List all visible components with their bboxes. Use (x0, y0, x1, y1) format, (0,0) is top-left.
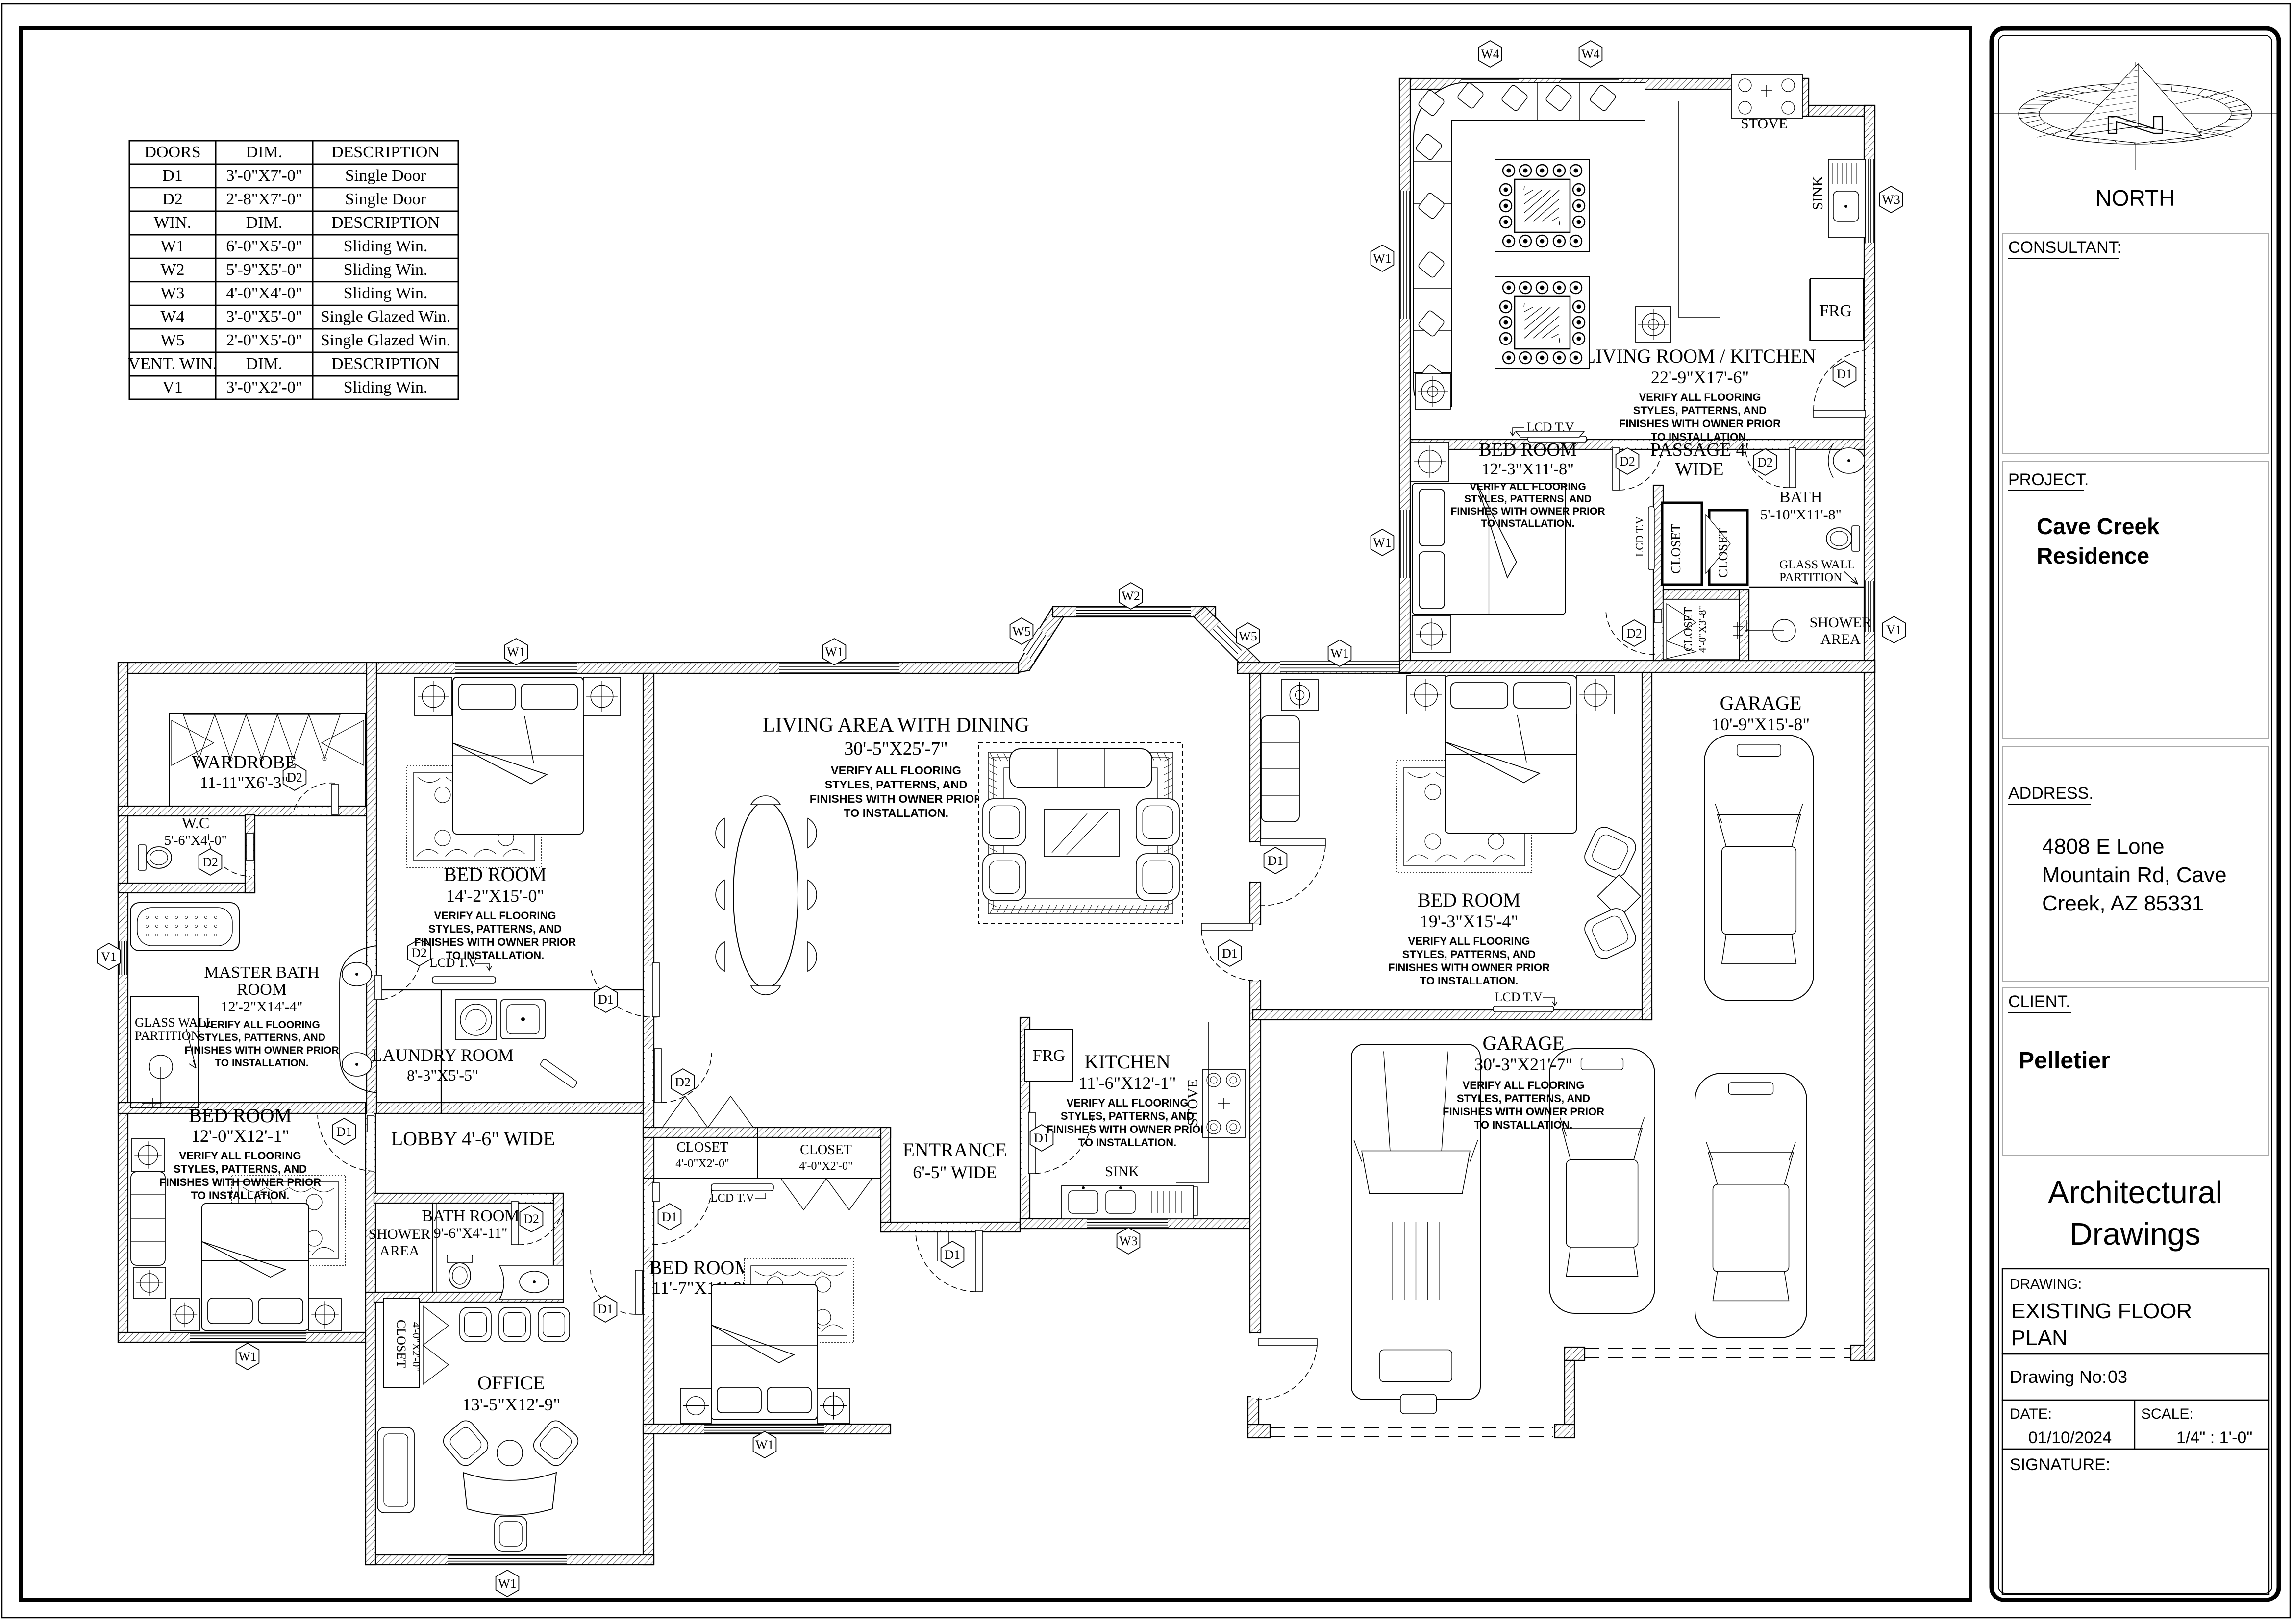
svg-text:3'-0"X5'-0": 3'-0"X5'-0" (226, 308, 302, 326)
svg-text:Drawings: Drawings (2070, 1216, 2201, 1252)
svg-text:WARDROBE: WARDROBE (192, 752, 296, 773)
svg-text:DIM.: DIM. (246, 355, 283, 373)
svg-text:KITCHEN: KITCHEN (1084, 1051, 1171, 1073)
svg-text:W1: W1 (238, 1350, 257, 1364)
svg-text:VENT. WIN.: VENT. WIN. (128, 355, 217, 373)
svg-text:SIGNATURE:: SIGNATURE: (2010, 1455, 2110, 1474)
svg-text:6'-0"X5'-0": 6'-0"X5'-0" (226, 237, 302, 255)
svg-text:SHOWER: SHOWER (1810, 615, 1872, 631)
svg-text:FINISHES WITH OWNER PRIOR: FINISHES WITH OWNER PRIOR (1451, 506, 1605, 517)
svg-text:5'-6"X4'-0": 5'-6"X4'-0" (164, 833, 227, 848)
svg-text:LAUNDRY ROOM: LAUNDRY ROOM (372, 1045, 514, 1065)
svg-text:BED ROOM: BED ROOM (1418, 889, 1520, 911)
svg-text:LIVING ROOM / KITCHEN: LIVING ROOM / KITCHEN (1584, 345, 1816, 367)
svg-text:SHOWER: SHOWER (369, 1226, 431, 1242)
svg-text:4'-0"X2'-0": 4'-0"X2'-0" (675, 1157, 729, 1170)
svg-text:Cave Creek: Cave Creek (2037, 514, 2160, 539)
svg-text:CLOSET: CLOSET (1669, 523, 1683, 574)
svg-text:14'-2"X15'-0": 14'-2"X15'-0" (446, 886, 544, 906)
svg-text:DIM.: DIM. (246, 214, 283, 232)
svg-text:SINK: SINK (1810, 176, 1826, 210)
svg-text:6'-5" WIDE: 6'-5" WIDE (913, 1162, 997, 1182)
svg-text:PARTITION: PARTITION (135, 1029, 200, 1043)
svg-text:30'-5"X25'-7": 30'-5"X25'-7" (844, 738, 947, 759)
svg-text:D1: D1 (598, 1302, 613, 1316)
svg-text:Single Glazed Win.: Single Glazed Win. (321, 308, 450, 326)
svg-text:AREA: AREA (1820, 631, 1861, 647)
svg-text:BED ROOM: BED ROOM (1479, 440, 1577, 460)
svg-text:D1: D1 (1222, 946, 1238, 960)
svg-text:TO INSTALLATION.: TO INSTALLATION. (1078, 1136, 1176, 1149)
svg-text:W1: W1 (825, 645, 844, 659)
svg-text:NORTH: NORTH (2095, 185, 2175, 211)
svg-text:Pelletier: Pelletier (2019, 1048, 2110, 1074)
svg-text:W5: W5 (1239, 629, 1257, 643)
svg-text:STYLES, PATTERNS, AND: STYLES, PATTERNS, AND (1464, 493, 1592, 505)
svg-text:BATH: BATH (1779, 488, 1823, 506)
svg-text:22'-9"X17'-6": 22'-9"X17'-6" (1651, 368, 1749, 387)
svg-text:W3: W3 (160, 284, 184, 302)
svg-text:4'-0"X3'-8": 4'-0"X3'-8" (1696, 606, 1708, 653)
svg-text:V1: V1 (162, 378, 183, 396)
svg-text:2'-8"X7'-0": 2'-8"X7'-0" (226, 190, 302, 208)
svg-text:FINISHES WITH OWNER PRIOR: FINISHES WITH OWNER PRIOR (1047, 1123, 1208, 1135)
svg-text:STYLES, PATTERNS, AND: STYLES, PATTERNS, AND (1061, 1110, 1194, 1122)
svg-text:TO INSTALLATION.: TO INSTALLATION. (215, 1058, 308, 1069)
svg-text:BED ROOM: BED ROOM (649, 1256, 752, 1279)
svg-text:FINISHES WITH OWNER PRIOR: FINISHES WITH OWNER PRIOR (185, 1045, 339, 1056)
svg-text:VERIFY ALL FLOORING: VERIFY ALL FLOORING (1067, 1097, 1189, 1109)
svg-text:CLOSET: CLOSET (1716, 527, 1730, 578)
svg-text:STYLES, PATTERNS, AND: STYLES, PATTERNS, AND (174, 1163, 307, 1175)
svg-text:4808 E Lone: 4808 E Lone (2042, 835, 2165, 859)
svg-text:FINISHES WITH OWNER PRIOR: FINISHES WITH OWNER PRIOR (1443, 1106, 1604, 1118)
svg-text:W1: W1 (755, 1438, 774, 1452)
svg-text:W2: W2 (1122, 589, 1140, 603)
svg-text:STYLES, PATTERNS, AND: STYLES, PATTERNS, AND (825, 778, 968, 791)
svg-text:W1: W1 (498, 1576, 517, 1591)
svg-text:W3: W3 (1119, 1234, 1138, 1248)
svg-text:GARAGE: GARAGE (1483, 1032, 1565, 1054)
svg-text:PASSAGE 4': PASSAGE 4' (1650, 440, 1749, 460)
svg-text:FRG: FRG (1819, 302, 1852, 320)
svg-text:CLIENT.: CLIENT. (2008, 992, 2070, 1011)
svg-text:TO INSTALLATION.: TO INSTALLATION. (844, 807, 948, 819)
svg-text:D1: D1 (945, 1248, 960, 1262)
svg-text:Sliding Win.: Sliding Win. (344, 261, 428, 279)
svg-text:D2: D2 (1626, 626, 1642, 640)
svg-text:VERIFY ALL FLOORING: VERIFY ALL FLOORING (203, 1019, 320, 1031)
svg-text:W5: W5 (160, 331, 184, 349)
svg-text:VERIFY ALL FLOORING: VERIFY ALL FLOORING (1463, 1079, 1585, 1091)
svg-text:01/10/2024: 01/10/2024 (2028, 1428, 2112, 1447)
svg-text:13'-5"X12'-9": 13'-5"X12'-9" (462, 1395, 560, 1414)
svg-text:5'-9"X5'-0": 5'-9"X5'-0" (226, 261, 302, 279)
svg-text:DIM.: DIM. (246, 143, 283, 161)
svg-text:ENTRANCE: ENTRANCE (902, 1139, 1007, 1161)
svg-text:Creek, AZ 85331: Creek, AZ 85331 (2042, 891, 2204, 915)
svg-text:D1: D1 (1268, 854, 1283, 868)
svg-text:Drawing No:: Drawing No: (2010, 1367, 2107, 1387)
svg-text:Sliding Win.: Sliding Win. (344, 284, 428, 302)
svg-text:W2: W2 (160, 261, 184, 279)
svg-text:FRG: FRG (1033, 1047, 1065, 1065)
svg-text:D2: D2 (202, 855, 218, 869)
svg-text:DESCRIPTION: DESCRIPTION (331, 214, 440, 232)
svg-text:W5: W5 (1012, 624, 1031, 639)
svg-text:10'-9"X15'-8": 10'-9"X15'-8" (1712, 714, 1810, 734)
svg-text:D1: D1 (1837, 367, 1852, 381)
svg-text:STYLES, PATTERNS, AND: STYLES, PATTERNS, AND (1633, 404, 1767, 417)
svg-text:12'-2"X14'-4": 12'-2"X14'-4" (221, 999, 303, 1015)
svg-text:OFFICE: OFFICE (477, 1372, 545, 1394)
svg-text:19'-3"X15'-4": 19'-3"X15'-4" (1420, 911, 1518, 931)
svg-text:D1: D1 (598, 992, 614, 1007)
svg-text:11-11"X6'-3": 11-11"X6'-3" (200, 774, 289, 792)
svg-text:VERIFY ALL FLOORING: VERIFY ALL FLOORING (1470, 481, 1586, 492)
svg-text:D1: D1 (336, 1125, 352, 1139)
svg-text:12'-3"X11'-8": 12'-3"X11'-8" (1482, 460, 1574, 478)
svg-text:V1: V1 (1886, 623, 1902, 637)
svg-text:30'-3"X21'-7": 30'-3"X21'-7" (1474, 1055, 1572, 1074)
svg-text:GARAGE: GARAGE (1720, 692, 1802, 714)
svg-text:EXISTING FLOOR: EXISTING FLOOR (2011, 1299, 2192, 1323)
svg-text:Sliding Win.: Sliding Win. (344, 237, 428, 255)
svg-text:LCD T.V: LCD T.V (710, 1192, 754, 1205)
svg-text:W1: W1 (1330, 646, 1349, 661)
svg-text:D2: D2 (1620, 454, 1635, 468)
svg-text:LIVING AREA WITH DINING: LIVING AREA WITH DINING (763, 714, 1029, 737)
svg-text:W.C: W.C (182, 814, 210, 832)
svg-text:1/4" : 1'-0": 1/4" : 1'-0" (2176, 1428, 2252, 1447)
svg-text:DRAWING:: DRAWING: (2010, 1277, 2082, 1292)
svg-text:LCD T.V: LCD T.V (1633, 517, 1645, 557)
svg-text:FINISHES WITH OWNER PRIOR: FINISHES WITH OWNER PRIOR (810, 792, 983, 805)
svg-text:STYLES, PATTERNS, AND: STYLES, PATTERNS, AND (428, 923, 562, 935)
svg-text:5'-10"X11'-8": 5'-10"X11'-8" (1760, 507, 1842, 523)
svg-text:TO INSTALLATION.: TO INSTALLATION. (191, 1189, 289, 1202)
svg-text:FINISHES WITH OWNER PRIOR: FINISHES WITH OWNER PRIOR (159, 1176, 321, 1188)
svg-text:V1: V1 (101, 950, 117, 964)
svg-text:W4: W4 (160, 308, 184, 326)
svg-text:LCD T.V: LCD T.V (429, 956, 477, 970)
svg-text:PROJECT.: PROJECT. (2008, 470, 2089, 489)
svg-text:FINISHES WITH OWNER PRIOR: FINISHES WITH OWNER PRIOR (414, 936, 576, 948)
svg-text:LCD T.V: LCD T.V (1495, 990, 1542, 1004)
svg-text:D1: D1 (162, 167, 183, 185)
svg-text:W1: W1 (507, 645, 525, 659)
svg-text:LOBBY 4'-6" WIDE: LOBBY 4'-6" WIDE (391, 1128, 555, 1150)
svg-text:SINK: SINK (1105, 1163, 1139, 1180)
svg-text:12'-0"X12'-1": 12'-0"X12'-1" (191, 1126, 289, 1146)
svg-text:ROOM: ROOM (237, 981, 287, 999)
svg-text:Single Glazed Win.: Single Glazed Win. (321, 331, 450, 349)
svg-text:CLOSET: CLOSET (394, 1320, 408, 1368)
svg-text:3'-0"X7'-0": 3'-0"X7'-0" (226, 167, 302, 185)
svg-text:Residence: Residence (2037, 543, 2149, 568)
svg-text:STYLES, PATTERNS, AND: STYLES, PATTERNS, AND (1402, 948, 1536, 960)
svg-text:TO INSTALLATION.: TO INSTALLATION. (1481, 518, 1574, 529)
svg-text:2'-0"X5'-0": 2'-0"X5'-0" (226, 331, 302, 349)
svg-text:MASTER BATH: MASTER BATH (204, 963, 319, 982)
svg-text:TO INSTALLATION.: TO INSTALLATION. (1420, 975, 1518, 987)
svg-text:PARTITION: PARTITION (1779, 571, 1842, 584)
svg-text:Single Door: Single Door (345, 167, 426, 185)
svg-text:VERIFY ALL FLOORING: VERIFY ALL FLOORING (831, 764, 961, 777)
svg-text:VERIFY ALL FLOORING: VERIFY ALL FLOORING (1639, 391, 1761, 403)
svg-text:DOORS: DOORS (144, 143, 200, 161)
svg-text:11'-6"X12'-1": 11'-6"X12'-1" (1078, 1073, 1176, 1093)
svg-text:TO INSTALLATION.: TO INSTALLATION. (1474, 1119, 1572, 1131)
svg-text:PLAN: PLAN (2011, 1326, 2068, 1350)
svg-text:D1: D1 (662, 1210, 677, 1224)
svg-text:W1: W1 (1373, 536, 1392, 550)
svg-text:CLOSET: CLOSET (1682, 607, 1695, 651)
svg-text:03: 03 (2108, 1367, 2127, 1387)
svg-text:CLOSET: CLOSET (800, 1142, 852, 1157)
svg-text:WIN.: WIN. (154, 214, 191, 232)
svg-text:W1: W1 (160, 237, 184, 255)
svg-text:ADDRESS.: ADDRESS. (2008, 784, 2094, 803)
svg-text:STYLES, PATTERNS, AND: STYLES, PATTERNS, AND (1457, 1092, 1590, 1105)
svg-text:W1: W1 (1373, 251, 1392, 266)
svg-text:4'-0"X2'-0": 4'-0"X2'-0" (799, 1160, 853, 1173)
svg-text:VERIFY ALL FLOORING: VERIFY ALL FLOORING (434, 910, 556, 922)
svg-text:9'-6"X4'-11": 9'-6"X4'-11" (434, 1225, 508, 1241)
svg-text:3'-0"X2'-0": 3'-0"X2'-0" (226, 378, 302, 396)
svg-text:WIDE: WIDE (1675, 459, 1723, 480)
svg-text:Sliding Win.: Sliding Win. (344, 378, 428, 396)
svg-text:VERIFY ALL FLOORING: VERIFY ALL FLOORING (1408, 935, 1530, 947)
svg-text:8'-3"X5'-5": 8'-3"X5'-5" (407, 1066, 478, 1084)
svg-text:D2: D2 (523, 1212, 539, 1226)
svg-text:4'-0"X2'-0": 4'-0"X2'-0" (410, 1322, 423, 1371)
svg-text:D2: D2 (675, 1075, 691, 1089)
svg-text:SCALE:: SCALE: (2141, 1406, 2193, 1422)
svg-text:CONSULTANT:: CONSULTANT: (2008, 238, 2121, 257)
svg-text:4'-0"X4'-0": 4'-0"X4'-0" (226, 284, 302, 302)
svg-text:Architectural: Architectural (2048, 1175, 2222, 1210)
svg-text:D2: D2 (1757, 455, 1773, 469)
svg-text:STYLES, PATTERNS, AND: STYLES, PATTERNS, AND (198, 1032, 325, 1043)
svg-text:W4: W4 (1581, 47, 1600, 61)
svg-text:Single Door: Single Door (345, 190, 426, 208)
svg-text:BED ROOM: BED ROOM (189, 1105, 292, 1127)
svg-text:AREA: AREA (379, 1243, 420, 1259)
svg-text:GLASS WALL: GLASS WALL (1779, 558, 1855, 571)
svg-text:STOVE: STOVE (1185, 1079, 1201, 1126)
svg-text:VERIFY ALL FLOORING: VERIFY ALL FLOORING (179, 1150, 301, 1162)
svg-text:Mountain Rd, Cave: Mountain Rd, Cave (2042, 863, 2227, 887)
svg-text:DESCRIPTION: DESCRIPTION (331, 355, 440, 373)
svg-text:W4: W4 (1481, 47, 1499, 61)
svg-text:BATH ROOM: BATH ROOM (422, 1207, 519, 1225)
svg-text:FINISHES WITH OWNER PRIOR: FINISHES WITH OWNER PRIOR (1388, 961, 1550, 974)
svg-text:CLOSET: CLOSET (676, 1140, 728, 1155)
svg-text:GLASS WALL: GLASS WALL (135, 1015, 214, 1030)
svg-text:FINISHES WITH OWNER PRIOR: FINISHES WITH OWNER PRIOR (1619, 418, 1781, 430)
svg-text:DATE:: DATE: (2010, 1406, 2052, 1422)
svg-text:W3: W3 (1882, 193, 1900, 207)
svg-text:D2: D2 (162, 190, 183, 208)
svg-text:DESCRIPTION: DESCRIPTION (331, 143, 440, 161)
